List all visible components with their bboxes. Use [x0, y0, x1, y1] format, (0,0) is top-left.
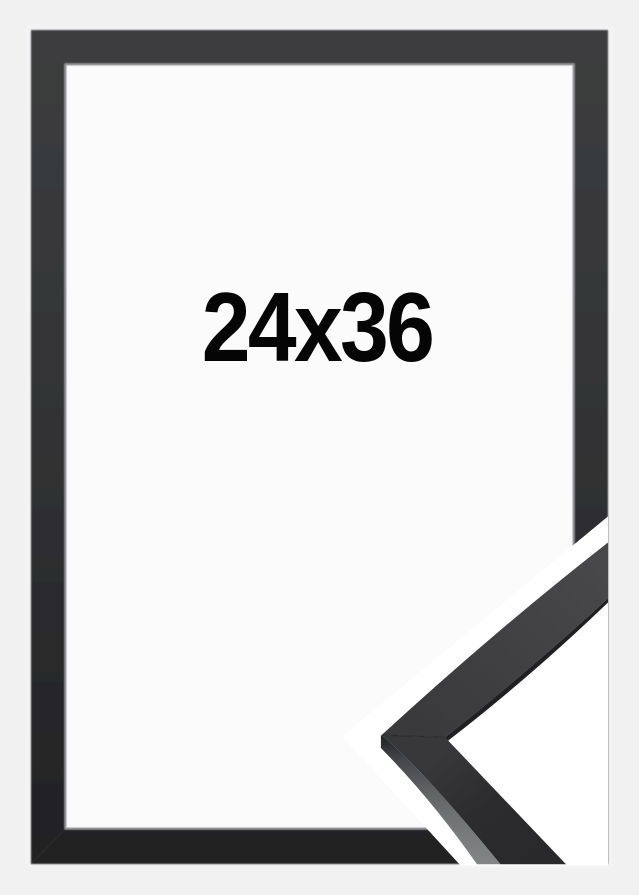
svg-text:24x36: 24x36 [202, 272, 432, 382]
